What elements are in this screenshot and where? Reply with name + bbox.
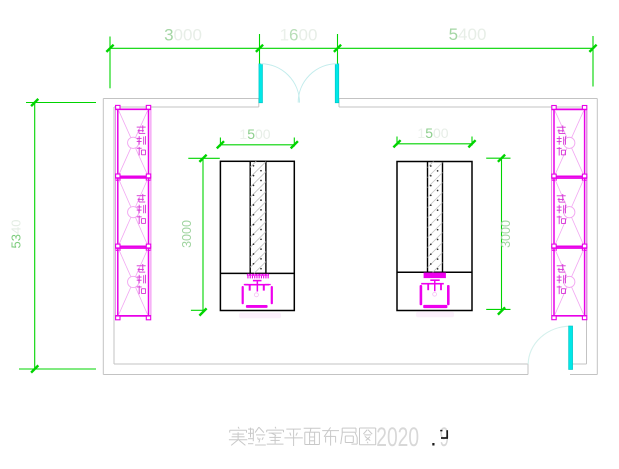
svg-text:1500: 1500 xyxy=(239,126,270,142)
svg-text:3000: 3000 xyxy=(180,220,194,248)
svg-text:5400: 5400 xyxy=(449,25,487,44)
svg-text:2020: 2020 xyxy=(376,422,419,452)
svg-text:1500: 1500 xyxy=(417,125,448,141)
svg-text:5340: 5340 xyxy=(9,220,24,249)
svg-text:3000: 3000 xyxy=(499,220,513,248)
svg-text:1600: 1600 xyxy=(280,26,318,45)
svg-text:3000: 3000 xyxy=(164,26,202,45)
